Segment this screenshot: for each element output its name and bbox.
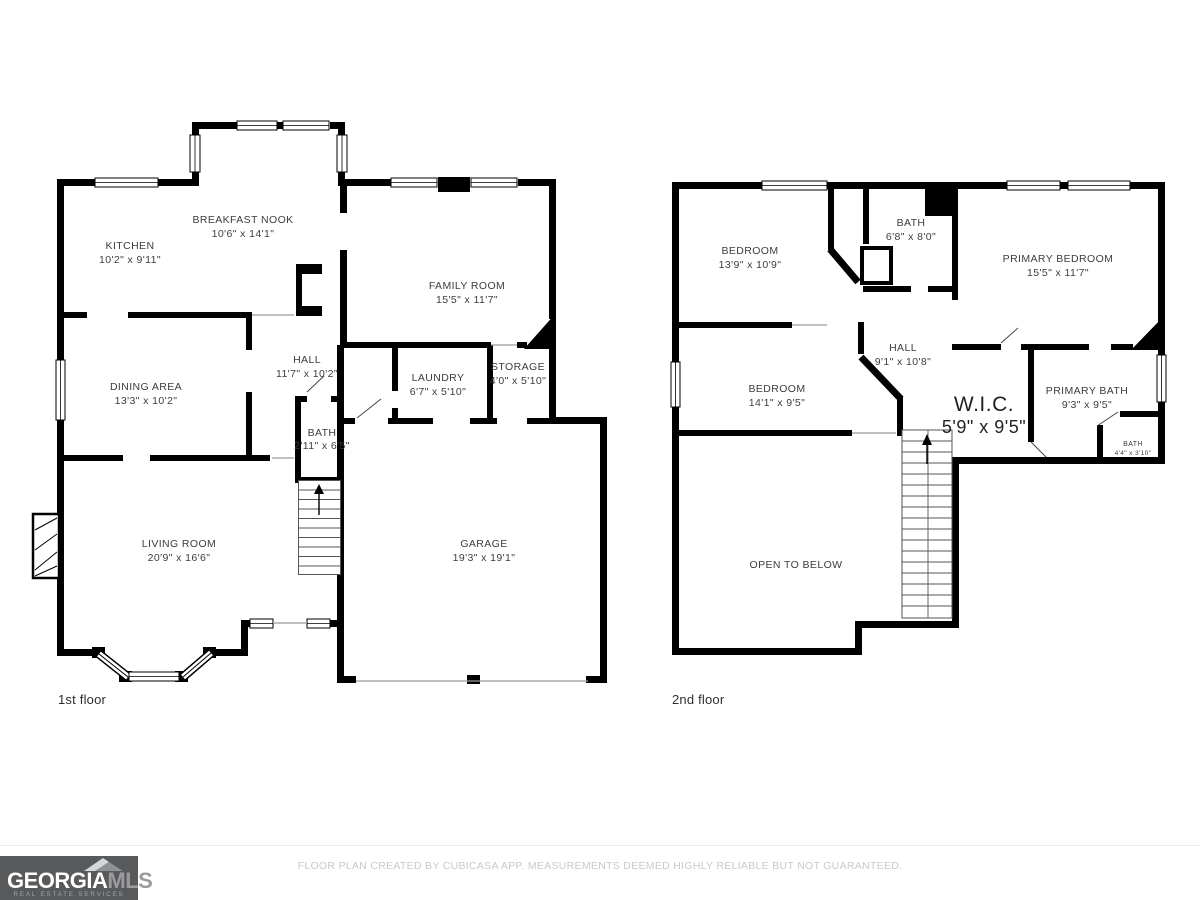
- svg-text:HALL: HALL: [293, 354, 321, 366]
- bath-closet: [862, 248, 891, 283]
- svg-text:6'8" x 8'0": 6'8" x 8'0": [886, 231, 936, 243]
- footer-divider: [0, 845, 1200, 846]
- svg-text:BATH: BATH: [1123, 441, 1143, 448]
- shower-block: [925, 182, 955, 216]
- room-label-primary-bath: PRIMARY BATH 9'3" x 9'5": [1046, 385, 1128, 411]
- svg-text:9'1" x 10'8": 9'1" x 10'8": [875, 356, 932, 368]
- room-label-wic: W.I.C. 5'9" x 9'5": [942, 393, 1026, 437]
- svg-text:20'9" x 16'6": 20'9" x 16'6": [148, 552, 211, 564]
- room-label-hall-1f: HALL 11'7" x 10'2": [276, 354, 338, 380]
- svg-text:11'7" x 10'2": 11'7" x 10'2": [276, 368, 338, 380]
- primary-bedroom-chamfer: [1131, 315, 1165, 350]
- svg-text:HALL: HALL: [889, 342, 917, 354]
- svg-text:FAMILY ROOM: FAMILY ROOM: [429, 280, 505, 292]
- room-label-bath-small: BATH 4'4" x 3'10": [1115, 441, 1152, 457]
- svg-text:BREAKFAST NOOK: BREAKFAST NOOK: [192, 214, 293, 226]
- svg-text:15'5" x 11'7": 15'5" x 11'7": [1027, 267, 1089, 279]
- room-label-open-to-below: OPEN TO BELOW: [750, 559, 843, 571]
- second-floor-plan: BEDROOM 13'9" x 10'9" BATH 6'8" x 8'0" P…: [671, 181, 1166, 707]
- disclaimer-text: FLOOR PLAN CREATED BY CUBICASA APP. MEAS…: [0, 860, 1200, 872]
- svg-text:19'3" x 19'1": 19'3" x 19'1": [453, 552, 516, 564]
- fireplace: [33, 514, 59, 578]
- second-floor-stairs: [902, 430, 952, 618]
- svg-text:2'11" x 6'5": 2'11" x 6'5": [294, 440, 350, 452]
- room-label-breakfast-nook: BREAKFAST NOOK 10'6" x 14'1": [192, 214, 293, 240]
- room-label-bedroom-1: BEDROOM 13'9" x 10'9": [719, 245, 782, 271]
- first-floor-stairs: [299, 481, 341, 575]
- svg-text:W.I.C.: W.I.C.: [954, 393, 1014, 416]
- svg-text:4'4" x 3'10": 4'4" x 3'10": [1115, 450, 1152, 457]
- svg-text:BEDROOM: BEDROOM: [721, 245, 778, 257]
- second-floor-label: 2nd floor: [672, 692, 725, 707]
- room-label-hall-2f: HALL 9'1" x 10'8": [875, 342, 932, 368]
- svg-text:BATH: BATH: [308, 427, 337, 439]
- svg-text:STORAGE: STORAGE: [491, 361, 545, 373]
- room-label-living-room: LIVING ROOM 20'9" x 16'6": [142, 538, 216, 564]
- room-label-primary-bedroom: PRIMARY BEDROOM 15'5" x 11'7": [1003, 253, 1114, 279]
- svg-text:14'1" x 9'5": 14'1" x 9'5": [749, 397, 806, 409]
- svg-text:GARAGE: GARAGE: [460, 538, 507, 550]
- svg-text:BEDROOM: BEDROOM: [748, 383, 805, 395]
- room-label-laundry: LAUNDRY 6'7" x 5'10": [410, 372, 467, 398]
- floor-plan-page: KITCHEN 10'2" x 9'11" BREAKFAST NOOK 10'…: [0, 0, 1200, 900]
- svg-text:5'9" x 9'5": 5'9" x 9'5": [942, 417, 1026, 437]
- svg-text:KITCHEN: KITCHEN: [106, 240, 155, 252]
- logo-tagline: REAL ESTATE SERVICES: [0, 891, 138, 898]
- room-label-bedroom-2: BEDROOM 14'1" x 9'5": [748, 383, 805, 409]
- room-label-garage: GARAGE 19'3" x 19'1": [453, 538, 516, 564]
- room-label-bath-2f: BATH 6'8" x 8'0": [886, 217, 936, 243]
- svg-text:DINING AREA: DINING AREA: [110, 381, 182, 393]
- svg-text:OPEN TO BELOW: OPEN TO BELOW: [750, 559, 843, 571]
- first-floor-labels: KITCHEN 10'2" x 9'11" BREAKFAST NOOK 10'…: [58, 214, 546, 707]
- bay-window: [99, 653, 211, 681]
- svg-text:13'3" x 10'2": 13'3" x 10'2": [115, 395, 178, 407]
- first-floor-label: 1st floor: [58, 692, 107, 707]
- svg-text:6'7" x 5'10": 6'7" x 5'10": [410, 386, 467, 398]
- svg-text:10'6" x 14'1": 10'6" x 14'1": [212, 228, 275, 240]
- room-label-storage: STORAGE 4'0" x 5'10": [490, 361, 547, 387]
- svg-text:13'9" x 10'9": 13'9" x 10'9": [719, 259, 782, 271]
- room-label-kitchen: KITCHEN 10'2" x 9'11": [99, 240, 161, 266]
- garage-door-post: [467, 675, 480, 684]
- svg-text:LIVING ROOM: LIVING ROOM: [142, 538, 216, 550]
- family-room-chamfer: [524, 313, 556, 349]
- svg-text:LAUNDRY: LAUNDRY: [412, 372, 465, 384]
- first-floor-plan: KITCHEN 10'2" x 9'11" BREAKFAST NOOK 10'…: [33, 121, 607, 707]
- room-label-dining-area: DINING AREA 13'3" x 10'2": [110, 381, 182, 407]
- svg-text:PRIMARY BATH: PRIMARY BATH: [1046, 385, 1128, 397]
- svg-text:BATH: BATH: [897, 217, 926, 229]
- floor-plan-canvas: KITCHEN 10'2" x 9'11" BREAKFAST NOOK 10'…: [0, 0, 1200, 845]
- second-floor-windows: [671, 181, 1166, 407]
- logo-text-georgia: GEORGIA: [7, 868, 107, 893]
- room-label-family-room: FAMILY ROOM 15'5" x 11'7": [429, 280, 505, 306]
- svg-text:15'5" x 11'7": 15'5" x 11'7": [436, 294, 498, 306]
- logo-text-mls: MLS: [107, 868, 152, 893]
- svg-text:9'3" x 9'5": 9'3" x 9'5": [1062, 399, 1112, 411]
- svg-text:10'2" x 9'11": 10'2" x 9'11": [99, 254, 161, 266]
- georgia-mls-logo: GEORGIAMLS REAL ESTATE SERVICES: [0, 856, 138, 900]
- svg-text:PRIMARY BEDROOM: PRIMARY BEDROOM: [1003, 253, 1114, 265]
- svg-text:4'0" x 5'10": 4'0" x 5'10": [490, 375, 547, 387]
